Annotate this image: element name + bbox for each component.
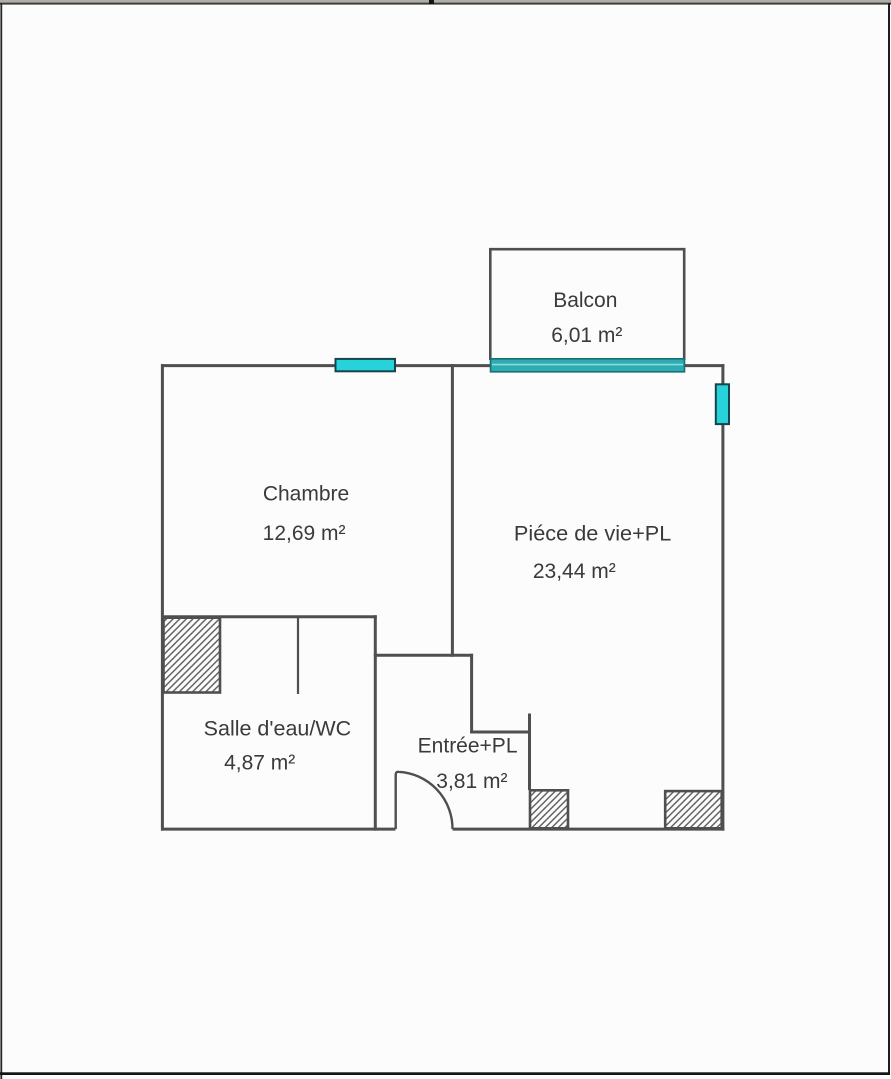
svg-text:3,81 m²: 3,81 m² — [436, 770, 507, 793]
svg-text:23,44 m²: 23,44 m² — [533, 560, 616, 583]
svg-text:Salle d'eau/WC: Salle d'eau/WC — [204, 716, 352, 740]
svg-text:Balcon: Balcon — [553, 289, 617, 312]
svg-text:12,69 m²: 12,69 m² — [263, 522, 346, 545]
svg-text:Chambre: Chambre — [263, 483, 349, 506]
svg-text:4,87 m²: 4,87 m² — [224, 752, 295, 775]
svg-text:6,01 m²: 6,01 m² — [551, 324, 622, 347]
svg-text:Entrée+PL: Entrée+PL — [418, 735, 518, 758]
svg-text:Piéce de vie+PL: Piéce de vie+PL — [514, 520, 671, 545]
